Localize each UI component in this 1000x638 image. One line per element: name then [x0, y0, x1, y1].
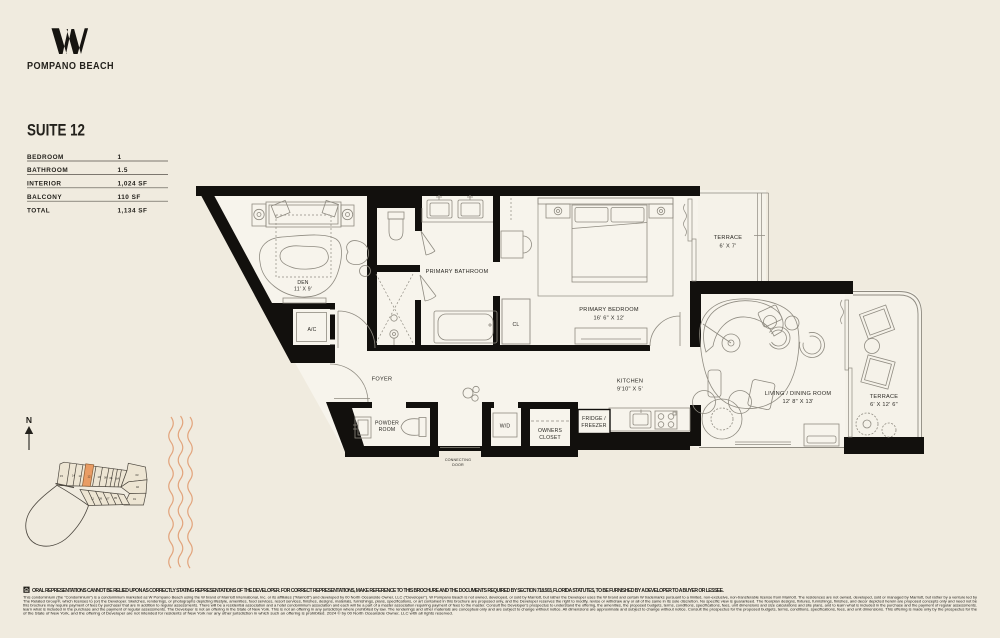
svg-text:CONNECTING: CONNECTING — [445, 458, 471, 462]
svg-text:6' X 7': 6' X 7' — [720, 244, 737, 250]
svg-text:of the State of New York, and: of the State of New York, and the offeri… — [23, 612, 453, 616]
svg-text:CL: CL — [513, 322, 520, 328]
svg-text:110 SF: 110 SF — [118, 194, 141, 201]
svg-text:TERRACE: TERRACE — [870, 394, 898, 400]
svg-text:11' X 9': 11' X 9' — [294, 287, 312, 293]
svg-text:FREEZER: FREEZER — [581, 423, 606, 429]
svg-text:FRIDGE /: FRIDGE / — [582, 416, 606, 422]
svg-text:LIVING / DINING ROOM: LIVING / DINING ROOM — [765, 391, 832, 397]
svg-text:BATHROOM: BATHROOM — [27, 167, 68, 174]
svg-text:6' X 12' 6": 6' X 12' 6" — [870, 402, 898, 408]
svg-text:9'10" X 5': 9'10" X 5' — [617, 387, 643, 393]
svg-text:ROOM: ROOM — [379, 427, 396, 433]
svg-text:1,134 SF: 1,134 SF — [118, 207, 148, 214]
svg-text:CLOSET: CLOSET — [539, 435, 561, 441]
svg-text:KITCHEN: KITCHEN — [617, 379, 643, 385]
svg-text:SUITE 12: SUITE 12 — [27, 122, 85, 140]
svg-text:BEDROOM: BEDROOM — [27, 154, 64, 161]
svg-text:N: N — [26, 415, 32, 425]
svg-text:DEN: DEN — [297, 280, 308, 286]
svg-text:PRIMARY BEDROOM: PRIMARY BEDROOM — [579, 307, 639, 313]
svg-text:1: 1 — [118, 154, 122, 161]
svg-text:W/D: W/D — [500, 424, 511, 430]
svg-text:POMPANO BEACH: POMPANO BEACH — [27, 61, 114, 72]
svg-text:A/C: A/C — [307, 327, 316, 333]
svg-text:1,024 SF: 1,024 SF — [118, 181, 148, 188]
svg-text:TOTAL: TOTAL — [27, 207, 50, 214]
svg-text:TERRACE: TERRACE — [714, 235, 742, 241]
svg-text:6A: 6A — [116, 476, 119, 480]
svg-text:BALCONY: BALCONY — [27, 194, 62, 201]
svg-text:INTERIOR: INTERIOR — [27, 181, 62, 188]
svg-text:POWDER: POWDER — [375, 421, 399, 427]
svg-text:16' 6" X 12': 16' 6" X 12' — [593, 316, 624, 322]
svg-text:PRIMARY BATHROOM: PRIMARY BATHROOM — [426, 269, 489, 275]
svg-text:FOYER: FOYER — [372, 377, 393, 383]
svg-text:1.5: 1.5 — [118, 167, 128, 174]
svg-text:OWNERS: OWNERS — [538, 428, 563, 434]
svg-text:ORAL REPRESENTATIONS CANNOT BE: ORAL REPRESENTATIONS CANNOT BE RELIED UP… — [32, 588, 724, 594]
svg-text:DOOR: DOOR — [452, 463, 464, 467]
svg-text:12' 8" X 13': 12' 8" X 13' — [782, 399, 813, 405]
